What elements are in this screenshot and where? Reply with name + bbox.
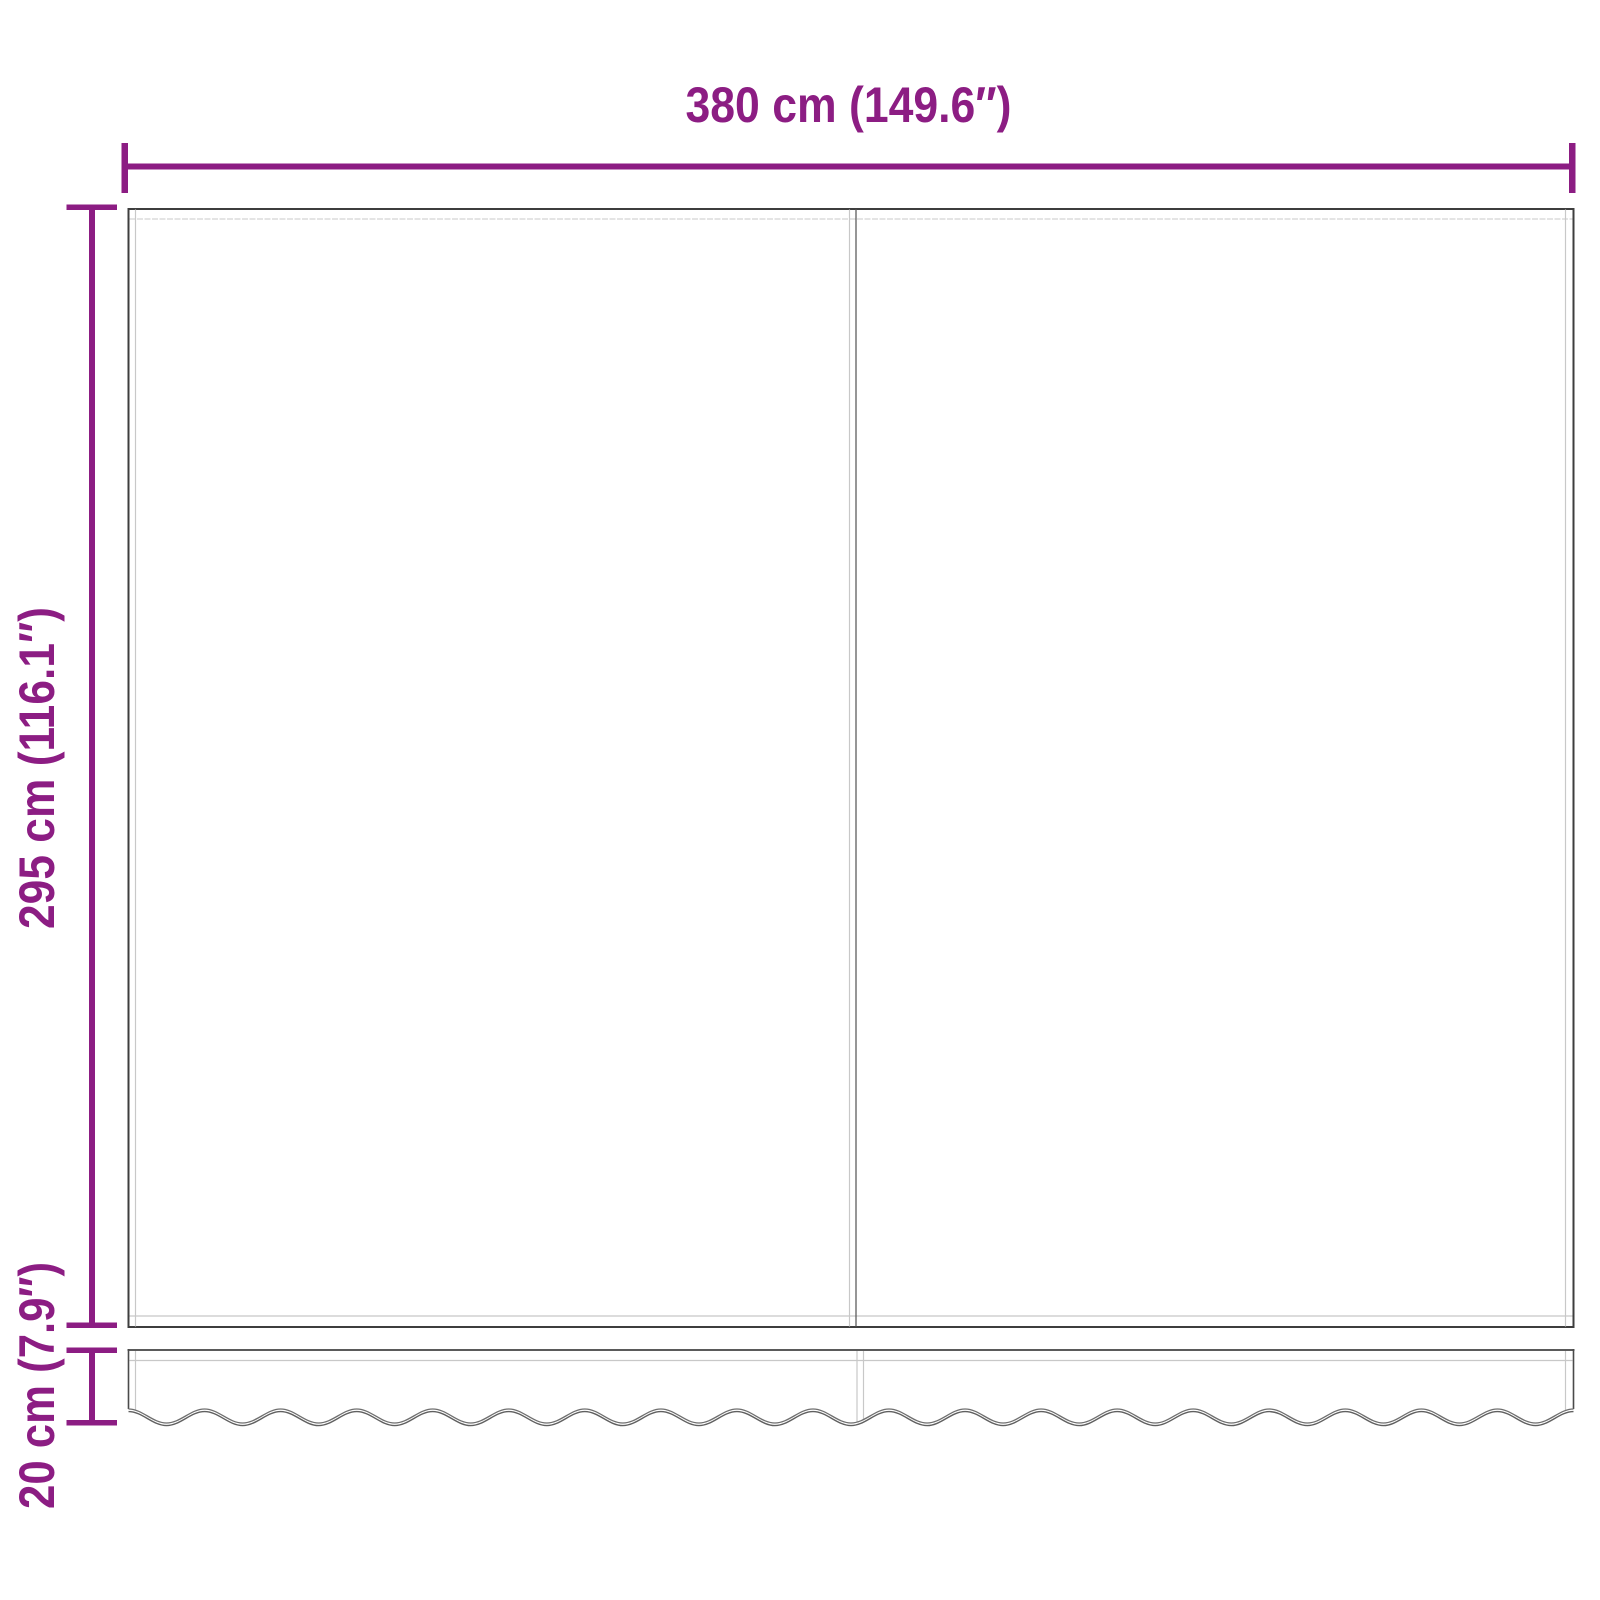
svg-text:20 cm (7.9″): 20 cm (7.9″) bbox=[9, 1262, 65, 1509]
svg-text:380 cm (149.6″): 380 cm (149.6″) bbox=[686, 77, 1012, 133]
svg-text:295 cm (116.1″): 295 cm (116.1″) bbox=[9, 607, 65, 929]
